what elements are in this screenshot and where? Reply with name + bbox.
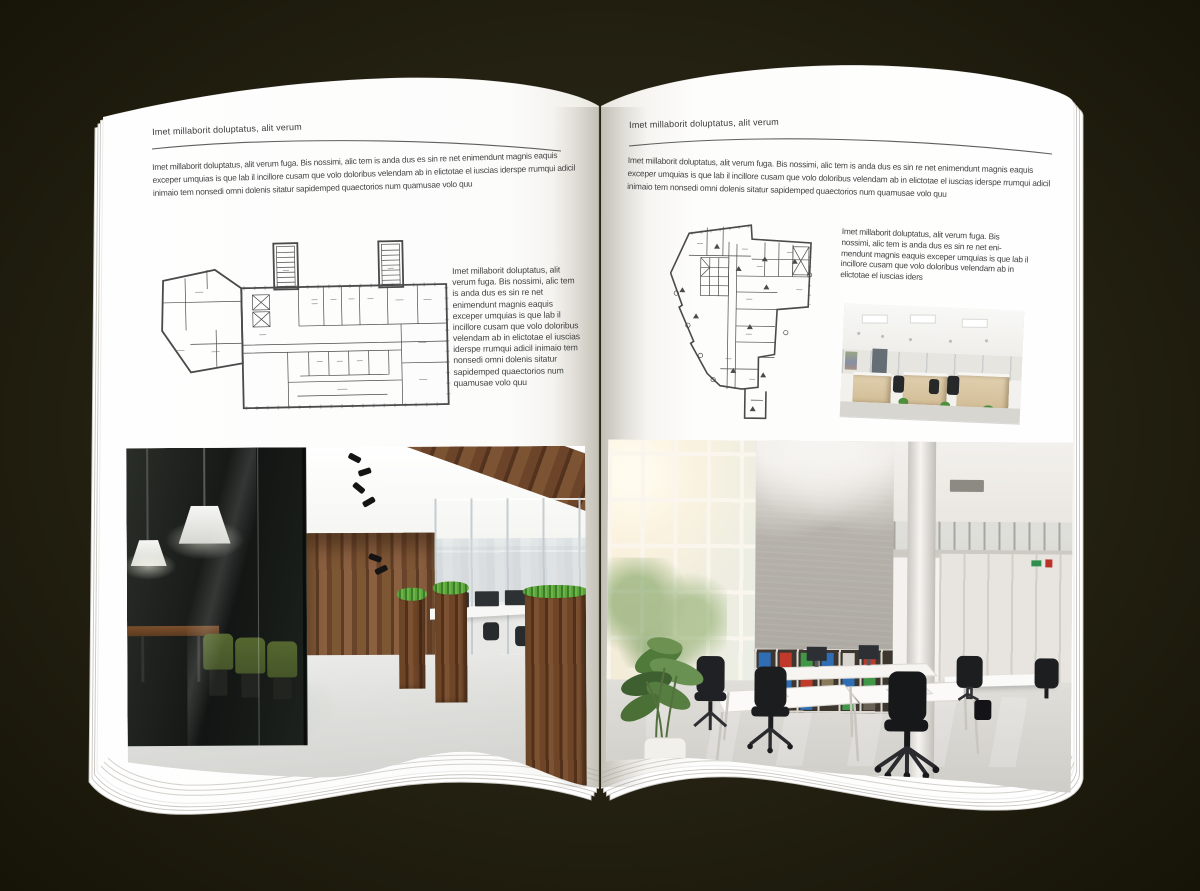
green-chair	[267, 641, 297, 677]
light-panel	[862, 314, 888, 323]
office-chair	[929, 379, 940, 394]
office-photo-small	[840, 303, 1025, 423]
magazine-spread-mockup: Imet millaborit doluptatus, alit verum I…	[0, 0, 1200, 891]
table-leg	[141, 636, 144, 682]
lamp-cord	[146, 448, 148, 542]
wood-planter	[525, 594, 587, 786]
wood-cabinet	[902, 372, 947, 406]
monitor	[475, 591, 499, 606]
light-panel	[910, 314, 936, 323]
office-photo-left	[126, 446, 587, 788]
planter-grass	[523, 585, 587, 598]
spiral-stair	[871, 348, 887, 375]
floor-plan-right	[645, 213, 836, 424]
lamp-glow	[126, 552, 177, 580]
glass-meeting-room	[126, 447, 308, 746]
glass-frame	[302, 447, 307, 745]
light-panel	[962, 319, 988, 328]
left-page-side-text: Imet millaborit doluptatus, alit verum f…	[452, 264, 582, 389]
glass-joint	[257, 448, 260, 746]
furniture-overlay	[606, 439, 1073, 792]
office-chair	[483, 622, 499, 640]
wood-cabinet	[956, 372, 1009, 410]
office-chair	[947, 376, 960, 395]
planter-grass	[433, 581, 469, 594]
wood-planter	[399, 597, 425, 689]
office-photo-right	[606, 439, 1073, 792]
chair-base	[273, 677, 291, 699]
ceiling	[843, 303, 1025, 356]
downlights	[857, 332, 860, 335]
planter-grass	[397, 588, 427, 601]
floor-plan-left	[154, 227, 452, 421]
wall-art	[845, 351, 858, 369]
office-chair	[893, 375, 905, 392]
glass-highlight	[186, 448, 258, 746]
right-page-side-text: Imet millaborit doluptatus, alit verum f…	[840, 226, 1030, 286]
wood-planter	[435, 590, 468, 702]
wood-cabinet	[852, 372, 891, 404]
